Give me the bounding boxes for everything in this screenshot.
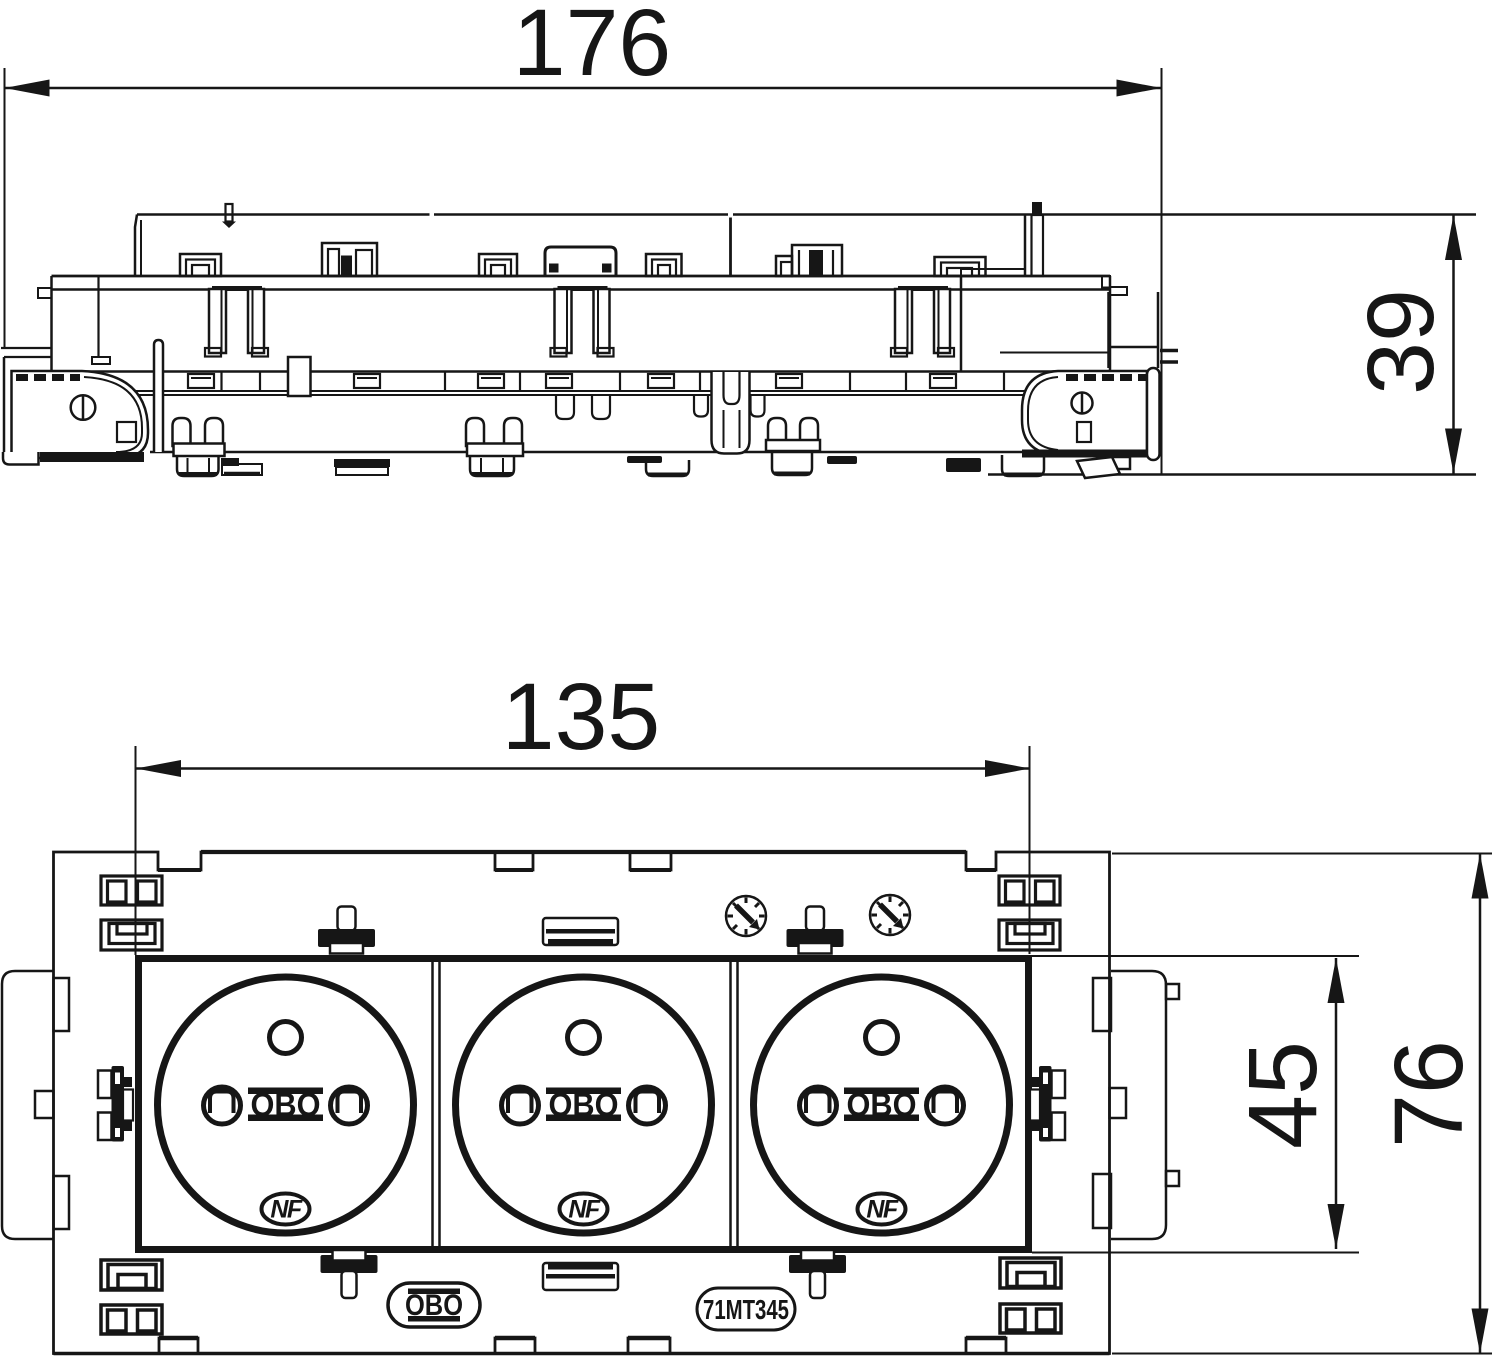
svg-text:176: 176	[513, 0, 672, 96]
svg-text:OBO: OBO	[405, 1289, 463, 1322]
svg-text:135: 135	[502, 664, 661, 770]
svg-text:76: 76	[1374, 1040, 1483, 1148]
svg-text:45: 45	[1228, 1041, 1337, 1149]
svg-text:71MT345: 71MT345	[703, 1294, 789, 1325]
svg-text:39: 39	[1348, 289, 1454, 395]
